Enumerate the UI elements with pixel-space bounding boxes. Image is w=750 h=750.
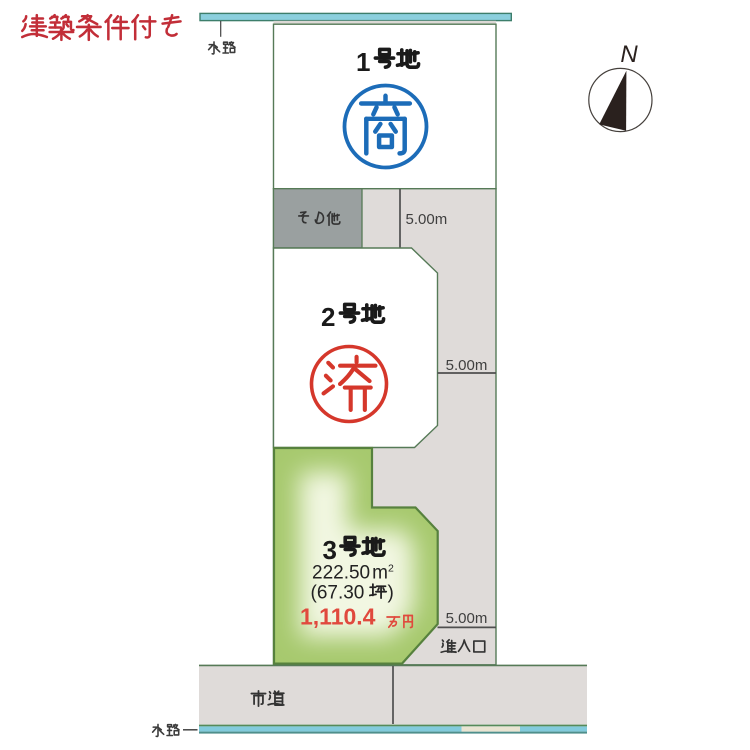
svg-text:(67.30: (67.30	[311, 583, 365, 604]
svg-text:3: 3	[323, 535, 337, 565]
svg-text:5.00m: 5.00m	[446, 357, 488, 374]
svg-text:N: N	[620, 41, 638, 68]
svg-text:2: 2	[321, 302, 335, 332]
svg-text:1,110.4: 1,110.4	[300, 604, 376, 630]
svg-text:): )	[388, 583, 394, 604]
svg-text:222.50m2: 222.50m2	[312, 563, 394, 584]
svg-text:1: 1	[356, 47, 370, 77]
svg-text:5.00m: 5.00m	[446, 610, 488, 627]
svg-text:5.00m: 5.00m	[406, 211, 448, 228]
